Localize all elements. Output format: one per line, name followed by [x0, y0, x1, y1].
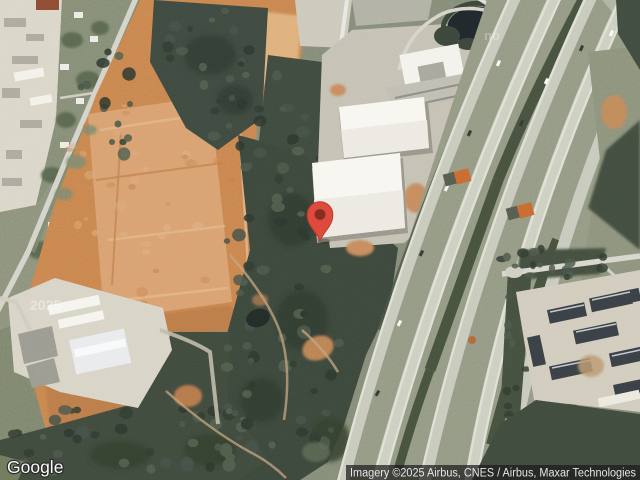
svg-text:2025: 2025 — [30, 297, 61, 313]
svg-text:Google: Google — [7, 457, 63, 477]
svg-text:no: no — [484, 28, 500, 43]
svg-text:Imagery ©2025 Airbus, CNES / A: Imagery ©2025 Airbus, CNES / Airbus, Max… — [350, 468, 636, 480]
